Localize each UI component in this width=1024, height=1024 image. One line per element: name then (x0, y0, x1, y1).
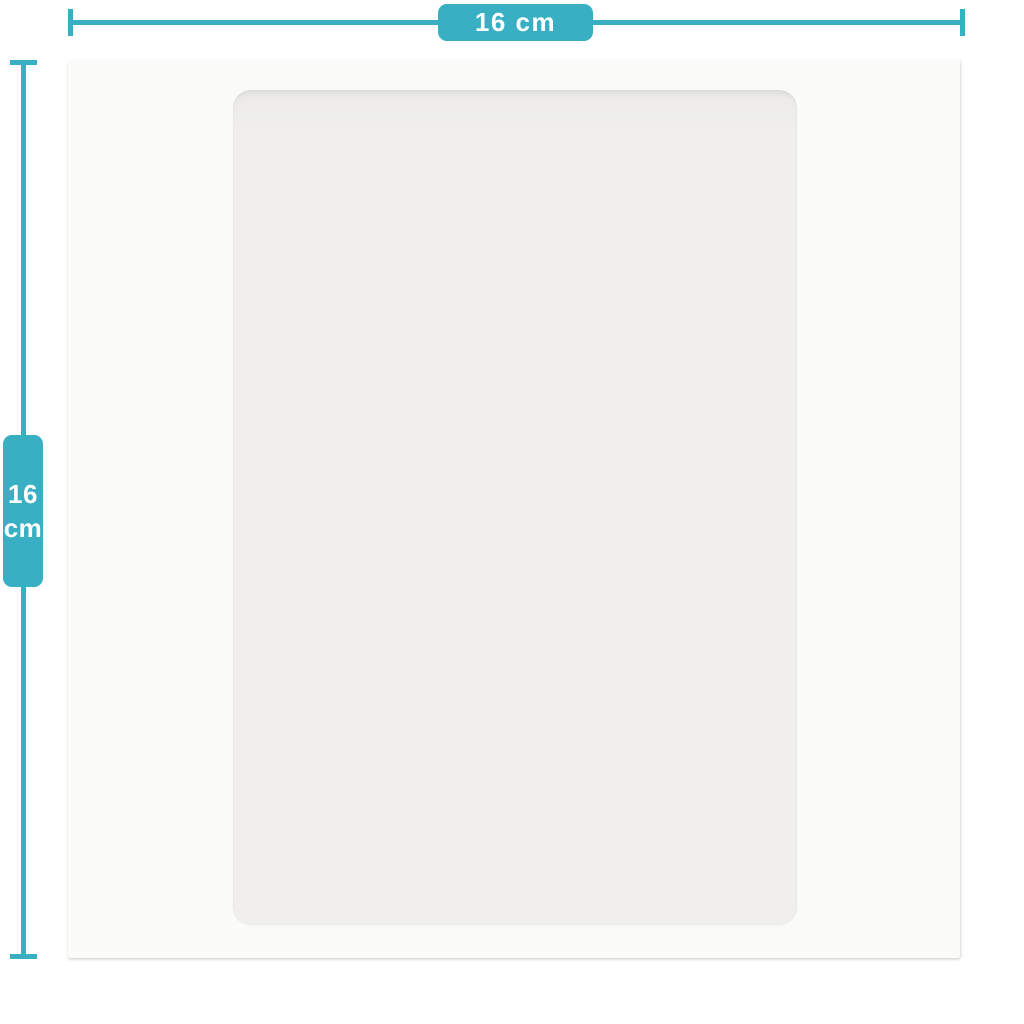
height-dimension-bottom-cap (10, 954, 37, 959)
width-dimension-left-cap (68, 9, 73, 36)
width-dimension-label: 16 cm (438, 4, 593, 41)
product-square (68, 60, 960, 958)
product-inner-panel (233, 90, 797, 925)
product-dimension-diagram: 16 cm 16 cm (0, 0, 1024, 1024)
height-dimension-value: 16 (8, 477, 38, 511)
height-dimension-unit: cm (4, 511, 43, 545)
height-dimension-label: 16 cm (3, 435, 43, 587)
height-dimension-top-cap (10, 60, 37, 65)
width-dimension-right-cap (960, 9, 965, 36)
